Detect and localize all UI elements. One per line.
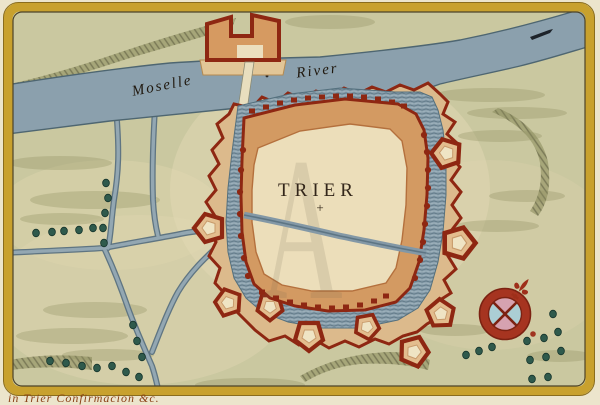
antique-map-of-trier: A <box>0 0 600 405</box>
city-cross-mark: + <box>316 200 323 215</box>
city-label: TRIER <box>278 180 358 201</box>
fort-courtyard <box>237 45 263 58</box>
handwritten-caption: in Trier Confirmacion &c. <box>8 391 160 405</box>
map-content: A <box>0 5 600 399</box>
map-canvas: A <box>0 0 600 405</box>
compass-dot <box>530 331 536 337</box>
